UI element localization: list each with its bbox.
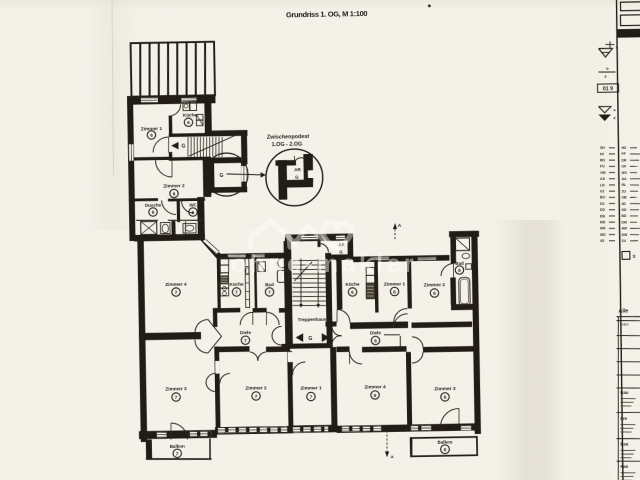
svg-text:MD: MD — [600, 220, 606, 224]
svg-text:OB: OB — [621, 196, 627, 200]
svg-text:Dusche: Dusche — [145, 202, 162, 207]
svg-text:VW: VW — [600, 171, 606, 175]
svg-text:7: 7 — [175, 395, 178, 401]
svg-text:Alle: Alle — [618, 308, 628, 314]
svg-text:Fre: Fre — [620, 416, 627, 421]
svg-text:DD: DD — [600, 208, 606, 212]
svg-text:AR: AR — [294, 167, 301, 172]
svg-text:a: a — [614, 108, 616, 112]
svg-text:S: S — [632, 254, 635, 259]
svg-text:FO: FO — [600, 165, 605, 169]
svg-text:G: G — [295, 174, 299, 179]
svg-text:DB: DB — [600, 214, 606, 218]
svg-text:01 9: 01 9 — [603, 86, 613, 92]
svg-text:7: 7 — [244, 338, 247, 344]
svg-text:6: 6 — [351, 290, 354, 296]
svg-text:2U: 2U — [621, 189, 626, 193]
svg-text:7: 7 — [255, 394, 258, 400]
svg-text:4S: 4S — [600, 239, 605, 243]
svg-text:Balkon: Balkon — [170, 444, 185, 449]
svg-text:AW: AW — [621, 227, 627, 231]
svg-text:6: 6 — [444, 447, 447, 453]
svg-text:G: G — [181, 144, 185, 150]
svg-text:U2: U2 — [600, 189, 605, 193]
svg-text:Zimmer 1: Zimmer 1 — [141, 126, 163, 132]
svg-text:AA: AA — [600, 177, 606, 181]
svg-text:BO: BO — [600, 196, 606, 200]
svg-text:Küche: Küche — [345, 282, 360, 287]
svg-text:7: 7 — [235, 290, 238, 296]
svg-text:G: G — [308, 336, 312, 342]
svg-text:6: 6 — [187, 120, 190, 126]
svg-text:6: 6 — [458, 268, 461, 274]
svg-text:6: 6 — [374, 393, 377, 399]
svg-text:AA: AA — [621, 177, 627, 181]
svg-text:6: 6 — [433, 291, 436, 297]
svg-text:Zwischenpodest: Zwischenpodest — [267, 134, 310, 141]
svg-text:d: d — [613, 116, 615, 120]
svg-text:Küche: Küche — [183, 113, 198, 118]
svg-text:Zimmer 1: Zimmer 1 — [300, 385, 322, 391]
svg-text:RD: RD — [600, 158, 606, 162]
svg-text:Zimmer 2: Zimmer 2 — [424, 282, 446, 288]
svg-text:Treppenhaus: Treppenhaus — [298, 317, 327, 323]
svg-text:Bau: Bau — [620, 442, 628, 447]
svg-text:6: 6 — [444, 395, 447, 401]
svg-text:DM: DM — [621, 220, 627, 224]
svg-text:7: 7 — [268, 290, 271, 296]
svg-text:D4: D4 — [600, 202, 605, 206]
svg-text:6: 6 — [152, 210, 155, 216]
svg-text:LR: LR — [600, 183, 605, 187]
svg-text:SH: SH — [600, 146, 605, 150]
svg-text:Bad: Bad — [455, 261, 464, 266]
svg-text:DR: DR — [621, 158, 627, 162]
svg-text:G: G — [219, 173, 223, 179]
svg-text:Diele: Diele — [240, 330, 252, 335]
svg-text:Zimmer 3: Zimmer 3 — [434, 386, 456, 392]
svg-text:A: A — [398, 223, 402, 229]
svg-text:Zimmer 4: Zimmer 4 — [364, 384, 386, 390]
svg-text:Küche: Küche — [229, 282, 244, 287]
svg-text:BD: BD — [621, 214, 627, 218]
svg-text:WD: WD — [600, 233, 606, 237]
svg-text:S4: S4 — [621, 239, 625, 243]
svg-text:Pan: Pan — [620, 464, 628, 469]
svg-text:6: 6 — [150, 133, 153, 139]
svg-text:Bad: Bad — [265, 282, 274, 287]
svg-text:7: 7 — [310, 394, 313, 400]
svg-text:7: 7 — [175, 290, 178, 296]
svg-text:6: 6 — [374, 338, 377, 344]
svg-text:4: 4 — [604, 75, 606, 79]
svg-text:Diele: Diele — [370, 330, 382, 335]
svg-text:WA: WA — [600, 227, 606, 231]
svg-text:1.OG - 2.OG: 1.OG - 2.OG — [272, 142, 303, 149]
svg-text:6: 6 — [173, 191, 176, 197]
svg-text:Balkon: Balkon — [437, 439, 452, 444]
svg-text:DD: DD — [621, 208, 627, 212]
svg-text:Index: Index — [620, 322, 629, 326]
svg-text:6: 6 — [393, 289, 396, 295]
svg-text:7: 7 — [176, 451, 179, 457]
svg-text:6: 6 — [192, 210, 195, 216]
svg-text:Zimmer 2: Zimmer 2 — [245, 385, 267, 391]
svg-text:WC: WC — [189, 202, 197, 207]
svg-text:HS: HS — [621, 146, 627, 150]
svg-text:Grundriss 1. OG, M 1:100: Grundriss 1. OG, M 1:100 — [286, 9, 368, 19]
svg-text:WV: WV — [621, 171, 627, 175]
svg-text:Bau: Bau — [620, 390, 628, 395]
svg-text:ohne-makler: ohne-makler — [231, 250, 417, 278]
svg-text:Zimmer 3: Zimmer 3 — [165, 386, 187, 392]
svg-text:Zimmer 2: Zimmer 2 — [163, 183, 185, 189]
svg-text:4D: 4D — [621, 202, 626, 206]
svg-text:+: + — [615, 46, 617, 50]
svg-text:DW: DW — [621, 233, 628, 237]
